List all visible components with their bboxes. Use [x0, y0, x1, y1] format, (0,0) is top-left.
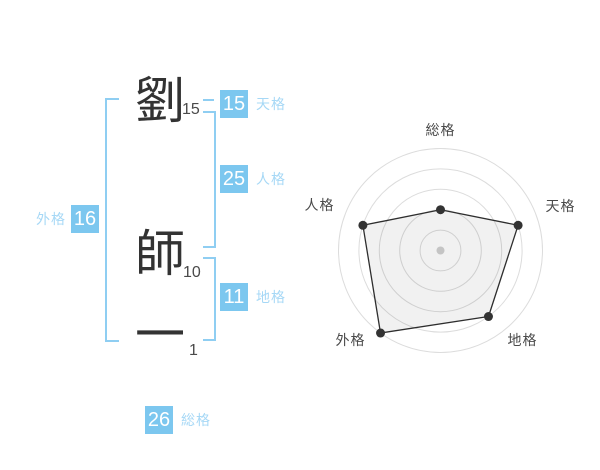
gaikaku-badge: 外格 16: [36, 205, 99, 233]
soukaku-value: 26: [145, 406, 173, 434]
radar-axis-label: 天格: [546, 198, 576, 214]
tenkaku-label: 天格: [256, 94, 286, 114]
gaikaku-label: 外格: [36, 209, 66, 229]
radar-axis-label: 総格: [426, 122, 456, 138]
radar-polygon: [363, 210, 518, 333]
stroke-count-2: 10: [183, 263, 201, 282]
chikaku-bracket: [203, 257, 216, 341]
radar-vertex-dot: [436, 205, 445, 214]
radar-vertex-dot: [484, 312, 493, 321]
tenkaku-badge: 15 天格: [220, 90, 286, 118]
radar-axis-label: 外格: [336, 332, 366, 348]
jinkaku-label: 人格: [256, 169, 286, 189]
radar-axis-label: 地格: [508, 332, 538, 348]
tenkaku-tick: [203, 99, 214, 101]
jinkaku-value: 25: [220, 165, 248, 193]
tenkaku-value: 15: [220, 90, 248, 118]
soukaku-label: 総格: [181, 410, 211, 430]
radar-axis-label: 人格: [305, 197, 335, 213]
gaikaku-bracket: [105, 98, 119, 342]
chikaku-badge: 11 地格: [220, 283, 286, 311]
jinkaku-badge: 25 人格: [220, 165, 286, 193]
radar-vertex-dot: [376, 329, 385, 338]
name-stroke-diagram: 劉 師 一 15 10 1 15 天格 25 人格 11 地格 外格 16 26…: [0, 0, 300, 470]
radar-center-dot: [437, 247, 445, 255]
chikaku-value: 11: [220, 283, 248, 311]
name-character-2: 師: [134, 229, 186, 279]
gaikaku-value: 16: [71, 205, 99, 233]
soukaku-badge: 26 総格: [145, 406, 211, 434]
stroke-count-3: 1: [189, 341, 198, 360]
name-character-3: 一: [134, 310, 186, 360]
stroke-count-1: 15: [182, 100, 200, 119]
radar-vertex-dot: [514, 221, 523, 230]
chikaku-label: 地格: [256, 287, 286, 307]
radar-chart: 総格天格地格外格人格: [300, 105, 590, 365]
jinkaku-bracket: [203, 111, 216, 248]
name-character-1: 劉: [134, 76, 186, 126]
radar-vertex-dot: [358, 221, 367, 230]
